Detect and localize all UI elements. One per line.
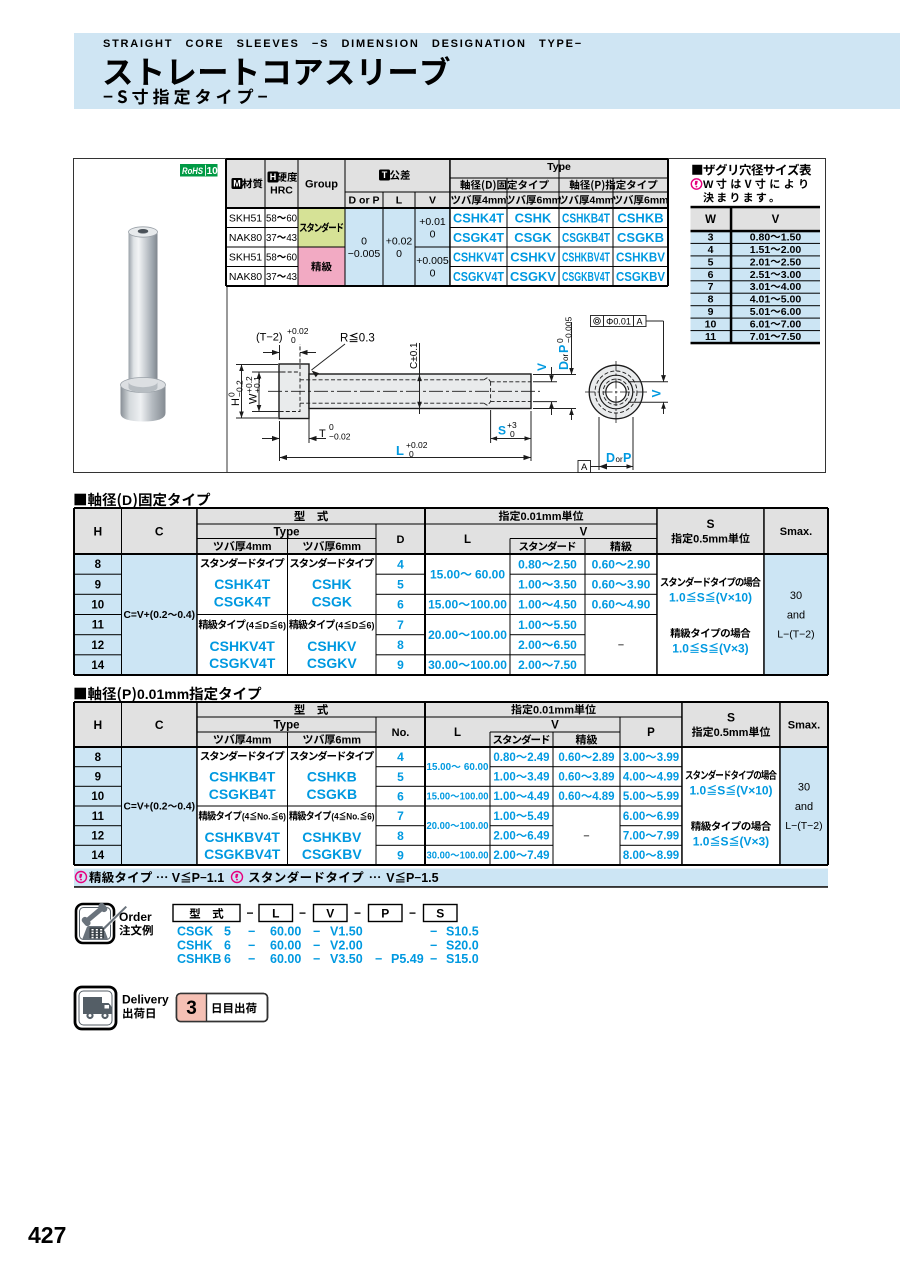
svg-text:8: 8 [95, 752, 102, 764]
svg-text:H: H [93, 718, 102, 732]
svg-text:1.0: 1.0 [690, 783, 707, 797]
svg-text:(V×3): (V×3) [719, 641, 749, 655]
svg-text:Delivery: Delivery [122, 993, 169, 1007]
svg-text:9: 9 [708, 306, 714, 318]
svg-text:1.0: 1.0 [672, 641, 689, 655]
svg-text:4: 4 [397, 750, 404, 764]
svg-text:0.3: 0.3 [359, 333, 375, 345]
svg-text:3: 3 [186, 998, 197, 1019]
svg-text:L: L [272, 906, 279, 920]
svg-text:A: A [636, 317, 642, 327]
svg-text:6: 6 [397, 598, 404, 612]
svg-text:S10.5: S10.5 [446, 925, 479, 939]
svg-text:CSHKV: CSHKV [510, 249, 556, 264]
svg-text:): ) [372, 620, 375, 630]
svg-text:−: − [248, 938, 255, 952]
svg-text:S: S [436, 906, 444, 920]
svg-text:58: 58 [266, 252, 277, 263]
svg-text:0: 0 [329, 422, 334, 432]
svg-text:W: W [248, 393, 260, 404]
svg-text:7: 7 [397, 809, 404, 823]
svg-text:and: and [787, 609, 805, 621]
svg-text:7: 7 [708, 281, 714, 293]
svg-text:−: − [583, 830, 589, 842]
svg-text:4.89: 4.89 [592, 791, 614, 803]
svg-text:STRAIGHT CORE SLEEVES −S DIMEN: STRAIGHT CORE SLEEVES −S DIMENSION DESIG… [103, 38, 583, 50]
svg-text:60: 60 [286, 213, 297, 224]
svg-text:SKH51: SKH51 [229, 252, 262, 264]
svg-text:V: V [172, 871, 181, 885]
svg-text:V: V [386, 871, 395, 885]
svg-text:R: R [340, 333, 348, 345]
svg-text:CSHK: CSHK [515, 210, 552, 225]
svg-text:2.01: 2.01 [750, 256, 771, 268]
svg-text:0.60: 0.60 [558, 772, 580, 784]
svg-text:2.90: 2.90 [627, 557, 651, 571]
svg-text:D: D [557, 361, 571, 370]
svg-text:CSGKV4T: CSGKV4T [209, 655, 276, 671]
svg-text:4: 4 [245, 811, 250, 822]
svg-text:5: 5 [397, 770, 404, 784]
svg-text:0.60: 0.60 [592, 598, 616, 612]
svg-text:Type: Type [547, 161, 571, 173]
svg-text:100.00: 100.00 [460, 850, 489, 861]
svg-text:P: P [623, 451, 631, 465]
svg-text:10: 10 [207, 166, 219, 177]
svg-text:L: L [454, 727, 461, 739]
svg-text:P5.49: P5.49 [391, 952, 424, 966]
svg-text:6: 6 [224, 938, 231, 952]
svg-text:CSHKBV: CSHKBV [616, 249, 665, 264]
svg-text:37: 37 [266, 233, 277, 244]
svg-text:15.00: 15.00 [430, 567, 460, 581]
svg-text:4.99: 4.99 [657, 772, 679, 784]
svg-text:2.00: 2.00 [493, 850, 515, 862]
svg-text:1.00: 1.00 [518, 618, 542, 632]
svg-text:−: − [313, 952, 320, 966]
svg-text:CSHK4T: CSHK4T [453, 210, 504, 225]
svg-text:D: D [122, 492, 132, 508]
svg-text:2.89: 2.89 [592, 752, 614, 764]
svg-text:1.00: 1.00 [493, 811, 515, 823]
svg-text:No.: No. [392, 727, 410, 739]
svg-text:−: − [248, 952, 255, 966]
svg-text:37: 37 [266, 272, 277, 283]
svg-text:CSHKB: CSHKB [617, 210, 663, 225]
svg-text:−: − [430, 925, 437, 939]
svg-text:1.00: 1.00 [518, 598, 542, 612]
svg-text:−0.2: −0.2 [235, 380, 245, 397]
svg-text:0.01mm: 0.01mm [137, 686, 189, 702]
svg-text:9: 9 [397, 848, 404, 862]
svg-text:8: 8 [95, 559, 102, 571]
svg-text:V: V [535, 363, 549, 371]
svg-text:): ) [283, 620, 286, 630]
svg-text:6mm: 6mm [644, 195, 669, 207]
svg-text:11: 11 [705, 331, 716, 343]
svg-text:2.00: 2.00 [493, 831, 515, 843]
svg-text:0.4: 0.4 [177, 610, 191, 621]
svg-text:3.50: 3.50 [554, 578, 578, 592]
svg-text:11: 11 [92, 811, 105, 823]
svg-text:100.00: 100.00 [470, 598, 507, 612]
svg-text:6.00: 6.00 [781, 306, 802, 318]
svg-text:9: 9 [397, 658, 404, 672]
svg-text:CSGKB4T: CSGKB4T [562, 230, 610, 245]
svg-text:C±0.1: C±0.1 [409, 342, 420, 369]
svg-text:2.51: 2.51 [750, 269, 771, 281]
svg-text:S: S [498, 424, 506, 438]
svg-text:−0.02: −0.02 [329, 432, 351, 442]
svg-text:4.01: 4.01 [750, 294, 771, 306]
svg-text:4: 4 [249, 620, 255, 630]
svg-text:−: − [618, 640, 624, 652]
svg-text:V: V [326, 906, 334, 920]
svg-text:5.00: 5.00 [623, 791, 645, 803]
svg-text:7.01: 7.01 [750, 331, 771, 343]
svg-text:60: 60 [286, 252, 297, 263]
svg-text:7.99: 7.99 [657, 831, 679, 843]
svg-text:30: 30 [790, 590, 802, 602]
svg-text:6.49: 6.49 [527, 831, 549, 843]
svg-text:T: T [319, 428, 326, 440]
svg-text:2.50: 2.50 [554, 557, 578, 571]
svg-text:−: − [409, 906, 416, 920]
svg-text:−: − [313, 938, 320, 952]
svg-text:Smax.: Smax. [788, 719, 820, 731]
svg-text:L: L [464, 534, 471, 546]
svg-text:4.50: 4.50 [554, 598, 578, 612]
svg-text:−: − [430, 952, 437, 966]
svg-text:1.51: 1.51 [750, 244, 771, 256]
svg-text:3.01: 3.01 [750, 281, 771, 293]
svg-text:V: V [772, 214, 780, 226]
svg-text:3.00: 3.00 [781, 269, 802, 281]
svg-text:43: 43 [286, 233, 297, 244]
svg-text:+0.02: +0.02 [386, 236, 413, 248]
svg-text:4.00: 4.00 [781, 281, 802, 293]
svg-text:CSHKV4T: CSHKV4T [210, 638, 276, 654]
svg-text:D or P: D or P [349, 195, 380, 207]
svg-text:CSHKB4T: CSHKB4T [562, 210, 610, 225]
svg-text:CSGKV: CSGKV [307, 655, 357, 671]
svg-text:−: − [248, 925, 255, 939]
svg-text:0.80: 0.80 [518, 557, 542, 571]
svg-text:M: M [233, 179, 241, 189]
svg-text:−: − [375, 952, 382, 966]
svg-text:5.01: 5.01 [750, 306, 771, 318]
svg-text:2.00: 2.00 [518, 658, 542, 672]
svg-text:−: − [430, 938, 437, 952]
svg-text:0.80: 0.80 [493, 752, 515, 764]
svg-text:30: 30 [798, 781, 810, 793]
svg-text:L−(T−2): L−(T−2) [785, 820, 822, 832]
svg-text:11: 11 [92, 620, 105, 632]
svg-text:30.00: 30.00 [428, 658, 458, 672]
svg-text:3: 3 [708, 231, 714, 243]
svg-text:0.60: 0.60 [558, 752, 580, 764]
svg-text:Φ0.01: Φ0.01 [606, 317, 631, 327]
svg-text:3.00: 3.00 [623, 752, 645, 764]
svg-text:4: 4 [334, 811, 339, 822]
svg-text:Type: Type [274, 526, 300, 538]
svg-text:−: − [247, 906, 254, 920]
svg-text:CSGKBV: CSGKBV [616, 269, 665, 284]
svg-text:0.60: 0.60 [592, 578, 616, 592]
svg-text:20.00: 20.00 [428, 628, 458, 642]
svg-text:CSHK: CSHK [177, 938, 212, 952]
svg-text:C: C [155, 718, 164, 732]
svg-text:5: 5 [708, 256, 714, 268]
svg-text:V: V [551, 720, 559, 732]
svg-text:S: S [706, 517, 714, 531]
svg-text:V: V [650, 389, 664, 397]
svg-text:P: P [557, 345, 571, 353]
svg-text:4mm: 4mm [482, 195, 507, 207]
svg-text:6mm: 6mm [335, 541, 361, 553]
svg-text:V3.50: V3.50 [330, 952, 363, 966]
svg-text:1.00: 1.00 [518, 578, 542, 592]
svg-text:CSGKV: CSGKV [510, 269, 556, 284]
svg-text:6mm: 6mm [537, 195, 562, 207]
svg-text:CSGK: CSGK [514, 230, 552, 245]
svg-text:6.50: 6.50 [554, 638, 578, 652]
svg-text:4.49: 4.49 [527, 791, 549, 803]
svg-text:0.60: 0.60 [592, 557, 616, 571]
svg-text:(V×10): (V×10) [736, 783, 772, 797]
svg-text:W: W [703, 179, 714, 191]
svg-text:CSGKB: CSGKB [617, 230, 664, 245]
svg-text:+0.01: +0.01 [419, 216, 446, 228]
svg-text:4mm: 4mm [590, 195, 615, 207]
svg-text:7.00: 7.00 [781, 319, 802, 331]
svg-text:0: 0 [430, 229, 436, 241]
svg-text:9: 9 [95, 772, 101, 784]
svg-text:5.49: 5.49 [527, 811, 549, 823]
svg-text:Smax.: Smax. [780, 526, 812, 538]
svg-text:6.01: 6.01 [750, 319, 771, 331]
svg-text:−0.005: −0.005 [564, 316, 574, 343]
svg-text:7: 7 [397, 618, 404, 632]
svg-text:14: 14 [91, 850, 104, 862]
svg-text:8.00: 8.00 [623, 850, 645, 862]
svg-text:2.00: 2.00 [518, 638, 542, 652]
svg-text:P: P [406, 871, 414, 885]
svg-text:H: H [230, 398, 242, 406]
svg-text:0: 0 [396, 248, 402, 260]
svg-text:CSGKBV4T: CSGKBV4T [562, 269, 610, 284]
svg-text:(V×3): (V×3) [740, 834, 770, 848]
svg-text:60.00: 60.00 [464, 762, 489, 773]
svg-text:C=V+: C=V+ [123, 610, 149, 621]
svg-text:3.89: 3.89 [592, 772, 614, 784]
svg-text:CSHKBV: CSHKBV [302, 829, 362, 845]
svg-text:+0.005: +0.005 [416, 255, 449, 267]
svg-text:0: 0 [361, 236, 367, 248]
svg-text:8.99: 8.99 [657, 850, 679, 862]
svg-text:or: or [616, 455, 623, 464]
svg-text:0.01mm: 0.01mm [533, 704, 574, 716]
svg-text:L: L [396, 195, 403, 207]
svg-text:0.4: 0.4 [177, 802, 191, 813]
svg-text:0.2: 0.2 [153, 610, 167, 621]
svg-text:0: 0 [510, 429, 515, 439]
svg-text:H: H [93, 524, 102, 538]
svg-text:S: S [727, 710, 735, 724]
svg-text:S20.0: S20.0 [446, 938, 479, 952]
svg-text:S: S [717, 783, 725, 797]
svg-text:CSHKB: CSHKB [307, 769, 357, 785]
svg-text:9: 9 [95, 579, 101, 591]
svg-text:100.00: 100.00 [470, 628, 507, 642]
svg-text:CSHKB4T: CSHKB4T [209, 769, 276, 785]
svg-text:CSHKBV4T: CSHKBV4T [204, 829, 280, 845]
svg-text:4mm: 4mm [246, 541, 272, 553]
svg-text:V2.00: V2.00 [330, 938, 363, 952]
svg-text:8: 8 [397, 829, 404, 843]
svg-text:7.50: 7.50 [781, 331, 802, 343]
svg-text:D: D [397, 534, 405, 546]
svg-text:4.90: 4.90 [627, 598, 651, 612]
svg-text:0.2: 0.2 [153, 802, 167, 813]
svg-text:S: S [700, 641, 708, 655]
svg-text:and: and [795, 801, 813, 813]
svg-text:−: − [354, 906, 361, 920]
svg-text:43: 43 [286, 272, 297, 283]
svg-text:CSGK4T: CSGK4T [214, 594, 271, 610]
svg-text:or: or [561, 354, 570, 361]
svg-text:): ) [192, 802, 195, 813]
svg-text:4: 4 [397, 557, 404, 571]
svg-text:CSHKB: CSHKB [177, 952, 221, 966]
svg-text:15.00: 15.00 [428, 598, 458, 612]
svg-text:6: 6 [224, 952, 231, 966]
svg-text:3.49: 3.49 [527, 772, 549, 784]
svg-text:P: P [647, 727, 655, 739]
svg-text:): ) [283, 811, 286, 822]
svg-text:60.00: 60.00 [270, 938, 301, 952]
svg-text:3.90: 3.90 [627, 578, 651, 592]
svg-text:0: 0 [409, 449, 414, 459]
svg-text:60.00: 60.00 [270, 925, 301, 939]
svg-text:C: C [155, 524, 164, 538]
svg-text:−: − [313, 925, 320, 939]
svg-text:): ) [372, 811, 375, 822]
svg-text:CSGK4T: CSGK4T [453, 230, 504, 245]
svg-text:No.: No. [257, 811, 270, 822]
svg-text:CSHKV: CSHKV [307, 638, 357, 654]
svg-text:58: 58 [266, 213, 277, 224]
svg-text:−: − [299, 906, 306, 920]
svg-text:4: 4 [708, 244, 714, 256]
svg-text:D: D [352, 620, 359, 630]
svg-text:W: W [705, 214, 716, 226]
svg-text:(T−2): (T−2) [256, 331, 283, 343]
svg-text:5.99: 5.99 [657, 791, 679, 803]
svg-text:2.00: 2.00 [781, 244, 802, 256]
svg-text:CSGKBV: CSGKBV [302, 846, 363, 862]
svg-text:6.00: 6.00 [623, 811, 645, 823]
svg-text:No.: No. [346, 811, 359, 822]
svg-text:D: D [606, 451, 615, 465]
svg-text:100.00: 100.00 [470, 658, 507, 672]
svg-text:2.49: 2.49 [527, 752, 549, 764]
svg-text:L: L [396, 443, 404, 458]
svg-text:CSHKV4T: CSHKV4T [453, 249, 504, 264]
svg-text:0: 0 [291, 335, 296, 345]
svg-text:1.0: 1.0 [693, 834, 710, 848]
svg-text:P: P [122, 686, 131, 702]
svg-text:7.49: 7.49 [527, 850, 549, 862]
svg-text:4: 4 [338, 620, 344, 630]
svg-text:1.50: 1.50 [781, 231, 802, 243]
svg-text:CSGKV4T: CSGKV4T [453, 269, 504, 284]
svg-text:−0.005: −0.005 [348, 248, 381, 260]
svg-text:V: V [580, 526, 588, 538]
svg-text:CSGKBV4T: CSGKBV4T [204, 846, 281, 862]
svg-text:HRC: HRC [270, 185, 293, 197]
svg-text:0.60: 0.60 [558, 791, 580, 803]
svg-text:S15.0: S15.0 [446, 952, 479, 966]
svg-text:60.00: 60.00 [475, 567, 505, 581]
svg-text:NAK80: NAK80 [229, 271, 262, 283]
svg-text:15.00: 15.00 [427, 791, 451, 802]
svg-text:0.5mm: 0.5mm [693, 533, 728, 545]
svg-text:CSGKB: CSGKB [307, 786, 358, 802]
svg-text:14: 14 [91, 660, 104, 672]
svg-text:10: 10 [91, 600, 104, 612]
svg-text:12: 12 [91, 831, 104, 843]
svg-text:5: 5 [397, 578, 404, 592]
svg-text:8: 8 [397, 638, 404, 652]
svg-text:427: 427 [28, 1222, 66, 1248]
svg-text:3.99: 3.99 [657, 752, 679, 764]
svg-text:T: T [382, 170, 388, 180]
svg-text:0: 0 [430, 268, 436, 280]
svg-text:Order: Order [119, 910, 152, 924]
svg-text:Type: Type [274, 720, 300, 732]
svg-text:S: S [697, 590, 705, 604]
svg-text:CSGK: CSGK [312, 594, 352, 610]
svg-text:4mm: 4mm [246, 734, 272, 746]
svg-text:C=V+: C=V+ [123, 802, 149, 813]
svg-text:CSHK: CSHK [312, 576, 352, 592]
svg-text:5: 5 [224, 925, 231, 939]
svg-text:10: 10 [705, 319, 717, 331]
svg-text:1.00: 1.00 [493, 772, 515, 784]
svg-text:7.00: 7.00 [623, 831, 645, 843]
svg-text:CSGK: CSGK [177, 925, 213, 939]
svg-text:): ) [192, 610, 195, 621]
svg-text:V: V [429, 195, 436, 207]
svg-text:2.50: 2.50 [781, 256, 802, 268]
svg-text:P: P [192, 871, 200, 885]
svg-text:100.00: 100.00 [460, 821, 489, 832]
svg-text:6mm: 6mm [335, 734, 361, 746]
svg-text:CSGKB4T: CSGKB4T [209, 786, 276, 802]
svg-text:20.00: 20.00 [427, 821, 451, 832]
svg-text:SKH51: SKH51 [229, 213, 262, 225]
svg-text:6: 6 [397, 789, 404, 803]
svg-text:Group: Group [305, 178, 338, 190]
svg-text:15.00: 15.00 [427, 762, 452, 773]
svg-text:P: P [381, 906, 389, 920]
svg-text:0.5mm: 0.5mm [714, 727, 749, 739]
svg-text:S: S [721, 834, 729, 848]
svg-text:L−(T−2): L−(T−2) [777, 629, 814, 641]
svg-text:60.00: 60.00 [270, 952, 301, 966]
svg-text:D: D [263, 620, 270, 630]
